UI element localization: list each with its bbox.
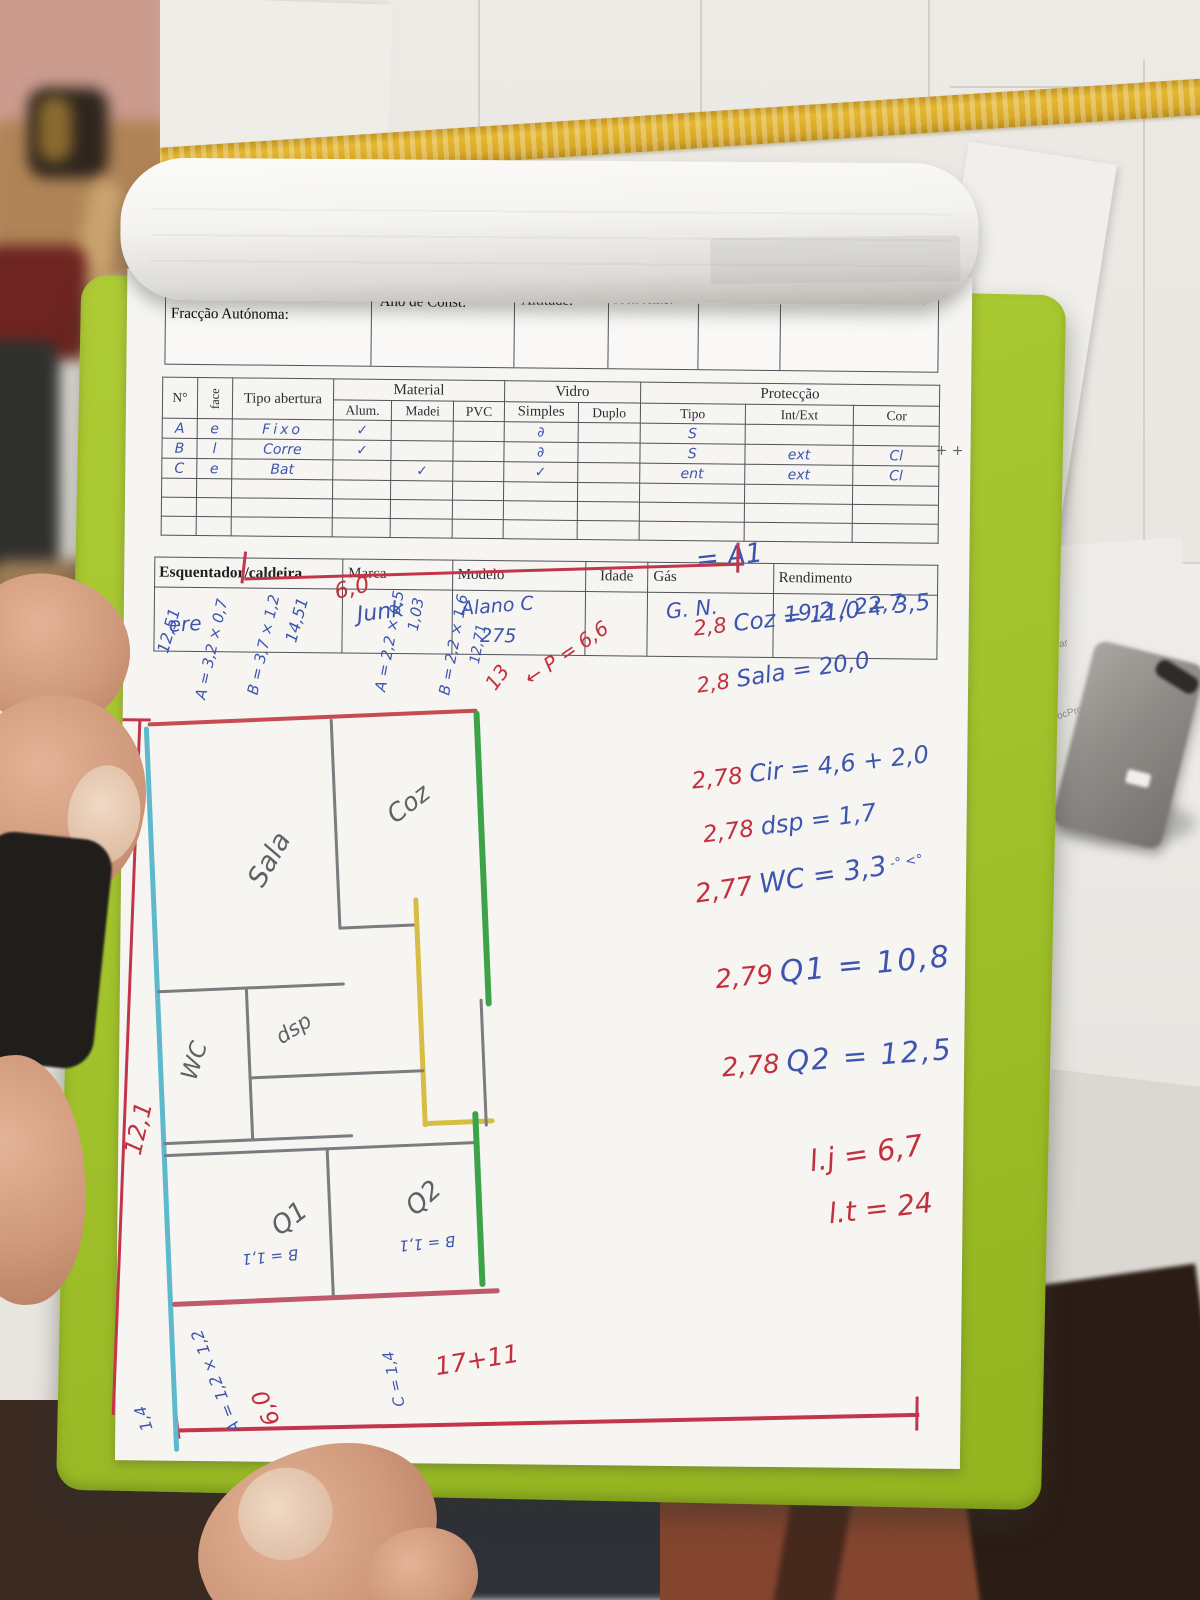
cell: ✓: [333, 440, 391, 461]
dim-tick: [736, 543, 739, 573]
cell: C: [162, 458, 197, 478]
height-value: 2,78: [701, 816, 755, 848]
cell: e: [197, 458, 232, 478]
height-value: 2,78: [721, 1049, 781, 1083]
height-value: 2,79: [714, 960, 774, 995]
cell: ∂: [504, 442, 578, 463]
field-label: Fracção Autónoma:: [171, 306, 289, 324]
wall-coz-bottom: [338, 923, 418, 929]
wall-yellow-vertical: [413, 897, 428, 1127]
paper-sheet: Rua da Qta. O—— Fracção Autónoma: Ano de…: [115, 268, 972, 1469]
room-label-q2: Q2: [400, 1175, 448, 1222]
cell: [453, 441, 504, 462]
cell: ent: [639, 463, 744, 484]
col-num: N°: [162, 377, 197, 418]
wall-dsp-bottom: [249, 1069, 425, 1079]
wall-rooms-top: [164, 1141, 476, 1157]
room-label-wc: WC: [177, 1038, 214, 1083]
tile-grout-line: [1143, 60, 1145, 580]
dim-label: 1,4: [130, 1403, 156, 1433]
phone-hinge: [1153, 657, 1200, 697]
total-lt: l.t = 24: [827, 1186, 935, 1230]
cell: ✓: [333, 420, 391, 441]
cell: B: [162, 438, 197, 458]
calc-line-cir: 2,78Cir = 4,6 + 2,0: [690, 740, 930, 794]
clipboard-group: Rua da Qta. O—— Fracção Autónoma: Ano de…: [56, 145, 1069, 1510]
wall-top-red: [148, 709, 478, 727]
col-cor: Cor: [854, 405, 940, 426]
cell: Fixo: [232, 419, 333, 440]
wall-right-green-upper: [473, 711, 491, 1007]
room-area: Q1 = 10,8: [778, 939, 952, 990]
cell: S: [640, 423, 745, 444]
cell: l: [197, 438, 232, 458]
cell: A: [162, 418, 197, 438]
wall-right-green-lower: [472, 1111, 485, 1287]
dim-label: 13: [480, 660, 514, 695]
col-alum: Alum.: [333, 400, 391, 421]
room-area: dsp = 1,7: [759, 798, 878, 841]
col-duplo: Duplo: [578, 402, 640, 423]
calc-line-wc: 2,77WC = 3,3 -° <°: [693, 845, 925, 909]
room-area: Q2 = 12,5: [785, 1032, 954, 1079]
cell: [577, 462, 639, 483]
wall-left-cyan: [144, 726, 179, 1452]
cell: Bat: [232, 459, 333, 480]
wall-wc-top: [157, 982, 345, 992]
cell: ✓: [391, 460, 453, 481]
cell: ✓: [504, 462, 578, 483]
group-vidro: Vidro: [504, 381, 640, 403]
rolled-page-ghost-box: [710, 235, 960, 284]
cell: [578, 442, 640, 463]
room-label-coz: Coz: [381, 778, 435, 829]
openings-table: N° face Tipo abertura Material Vidro Pro…: [161, 377, 941, 544]
room-label-dsp: dsp: [271, 1008, 316, 1048]
wall-bottom-red: [172, 1288, 500, 1307]
wall-wc-bottom: [163, 1134, 353, 1144]
heater-col-modelo: Modelo: [452, 560, 585, 591]
wall-q-divider: [326, 1149, 335, 1299]
cell: [453, 421, 504, 442]
cell: Cl: [853, 445, 939, 466]
dim-tick: [915, 1397, 918, 1431]
wall-wc-divider: [245, 988, 254, 1140]
height-value: 2,8: [695, 669, 732, 698]
col-face-label: face: [207, 388, 222, 409]
cell: e: [197, 418, 232, 438]
cell: [854, 425, 940, 446]
room-area: Cir = 4,6 + 2,0: [748, 740, 930, 788]
cell: [578, 422, 640, 443]
gold-jar: [38, 96, 72, 162]
tile-grout-line: [700, 0, 702, 120]
phone-slot: [1125, 769, 1152, 788]
wall-right-mid: [479, 999, 487, 1127]
col-tipo-abertura: Tipo abertura: [232, 378, 333, 420]
wc-small-marks: -° <°: [889, 852, 924, 872]
cell: ext: [744, 464, 853, 485]
col-pvc: PVC: [454, 401, 505, 422]
cell: [453, 461, 504, 482]
cell: [333, 460, 391, 481]
calc-line-q2: 2,78Q2 = 12,5: [720, 1032, 953, 1084]
photo-scene: 9 9 50 ambos guardar MobileDocPropCert v…: [0, 0, 1200, 1600]
calc-line-q1: 2,79Q1 = 10,8: [714, 939, 953, 996]
col-simples: Simples: [504, 402, 578, 423]
cell: ∂: [504, 422, 578, 443]
heater-col-esq: Esquentador/caldeira: [155, 557, 343, 589]
room-label-q1: Q1: [266, 1196, 314, 1242]
calc-line-dsp: 2,78dsp = 1,7: [701, 798, 878, 848]
cell: Cl: [853, 465, 939, 486]
rolled-page: [120, 158, 979, 306]
col-intext: Int/Ext: [745, 404, 854, 425]
cell: Corre: [232, 439, 333, 460]
margin-plus-marks: + +: [936, 443, 964, 459]
height-value: 2,77: [693, 871, 755, 909]
cell: S: [640, 443, 745, 464]
cell: ext: [745, 444, 854, 465]
cell: [391, 420, 453, 441]
room-area: WC = 3,3: [757, 851, 888, 900]
total-lj: l.j = 6,7: [807, 1128, 925, 1178]
dark-arm: [0, 340, 60, 590]
cell: [391, 440, 453, 461]
cell: [745, 424, 854, 445]
group-material: Material: [333, 379, 504, 402]
tile-grout-line: [928, 0, 930, 110]
col-face: face: [197, 377, 232, 418]
height-value: 2,78: [690, 763, 744, 795]
wall-sala-coz-divider: [330, 719, 341, 929]
height-value: 2,8: [692, 613, 728, 641]
room-label-sala: Sala: [242, 827, 297, 893]
col-prot-tipo: Tipo: [640, 403, 745, 424]
col-madei: Madei: [391, 400, 453, 421]
